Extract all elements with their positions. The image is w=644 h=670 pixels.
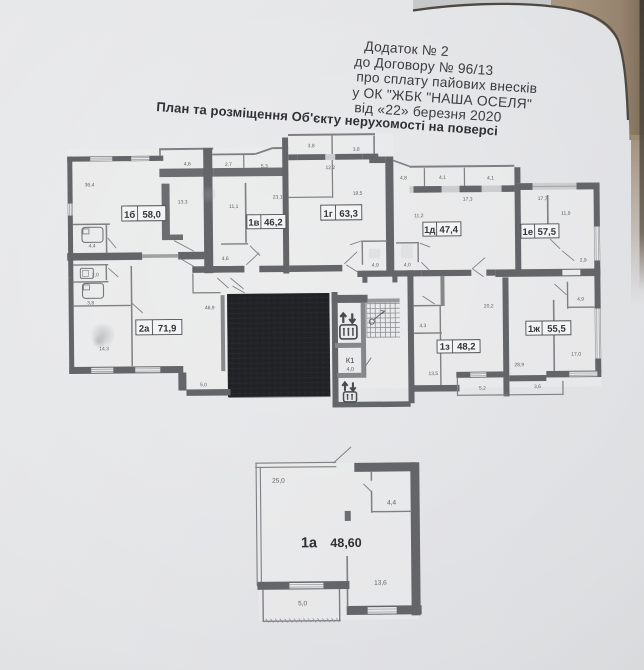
svg-text:47,4: 47,4 [439, 225, 458, 236]
svg-text:13,5: 13,5 [428, 371, 438, 377]
svg-text:17,7: 17,7 [538, 196, 548, 202]
svg-text:1д: 1д [424, 225, 435, 236]
svg-text:48,2: 48,2 [457, 341, 476, 352]
svg-text:4,3: 4,3 [419, 323, 426, 329]
svg-text:11,9: 11,9 [561, 211, 571, 217]
svg-text:1в: 1в [248, 218, 259, 229]
svg-text:4,8: 4,8 [400, 175, 407, 181]
svg-text:5,0: 5,0 [200, 382, 207, 388]
svg-text:2а: 2а [139, 324, 150, 335]
svg-text:2,9: 2,9 [580, 258, 587, 264]
svg-text:19,5: 19,5 [353, 191, 363, 197]
svg-text:4,0: 4,0 [404, 262, 411, 268]
svg-text:11,2: 11,2 [414, 213, 424, 219]
svg-text:23,1: 23,1 [273, 195, 283, 201]
svg-text:4,4: 4,4 [89, 243, 96, 249]
svg-text:4,9: 4,9 [577, 297, 584, 303]
svg-text:1а: 1а [301, 535, 318, 551]
svg-text:5,2: 5,2 [479, 386, 486, 392]
svg-text:4,6: 4,6 [222, 256, 229, 262]
svg-text:4,6: 4,6 [184, 161, 191, 167]
svg-text:1е: 1е [522, 227, 533, 238]
svg-text:58,0: 58,0 [142, 209, 161, 220]
svg-text:13,6: 13,6 [374, 580, 387, 587]
svg-text:К1: К1 [346, 356, 355, 365]
svg-text:4,9: 4,9 [372, 263, 379, 269]
svg-text:5,0: 5,0 [298, 600, 307, 607]
svg-text:3,8: 3,8 [353, 147, 360, 153]
svg-text:1г: 1г [323, 209, 332, 220]
svg-text:55,5: 55,5 [547, 324, 566, 335]
svg-text:1б: 1б [124, 210, 135, 221]
svg-text:20,2: 20,2 [484, 303, 494, 309]
svg-text:28,9: 28,9 [514, 362, 524, 368]
svg-text:4,1: 4,1 [487, 175, 494, 181]
svg-text:13,3: 13,3 [178, 199, 188, 205]
svg-text:1з: 1з [440, 342, 450, 353]
svg-text:36,4: 36,4 [85, 182, 95, 188]
svg-text:48,60: 48,60 [330, 536, 361, 550]
svg-text:1ж: 1ж [528, 324, 540, 335]
svg-text:25,0: 25,0 [272, 478, 285, 485]
svg-text:17,3: 17,3 [463, 197, 473, 203]
svg-text:11,1: 11,1 [229, 204, 239, 210]
svg-text:4,0: 4,0 [346, 367, 354, 373]
svg-text:5,3: 5,3 [261, 164, 268, 170]
svg-text:17,0: 17,0 [571, 352, 581, 358]
svg-text:2,7: 2,7 [225, 162, 232, 168]
svg-text:3,8: 3,8 [308, 143, 315, 149]
svg-text:46,2: 46,2 [264, 217, 283, 228]
svg-text:4,4: 4,4 [387, 499, 396, 506]
svg-text:71,9: 71,9 [158, 323, 177, 334]
svg-text:57,5: 57,5 [538, 227, 557, 238]
svg-text:12,2: 12,2 [325, 165, 335, 171]
svg-text:46,9: 46,9 [205, 305, 215, 311]
svg-text:63,3: 63,3 [339, 209, 358, 220]
svg-text:3,6: 3,6 [534, 384, 541, 390]
svg-text:4,1: 4,1 [439, 175, 446, 181]
